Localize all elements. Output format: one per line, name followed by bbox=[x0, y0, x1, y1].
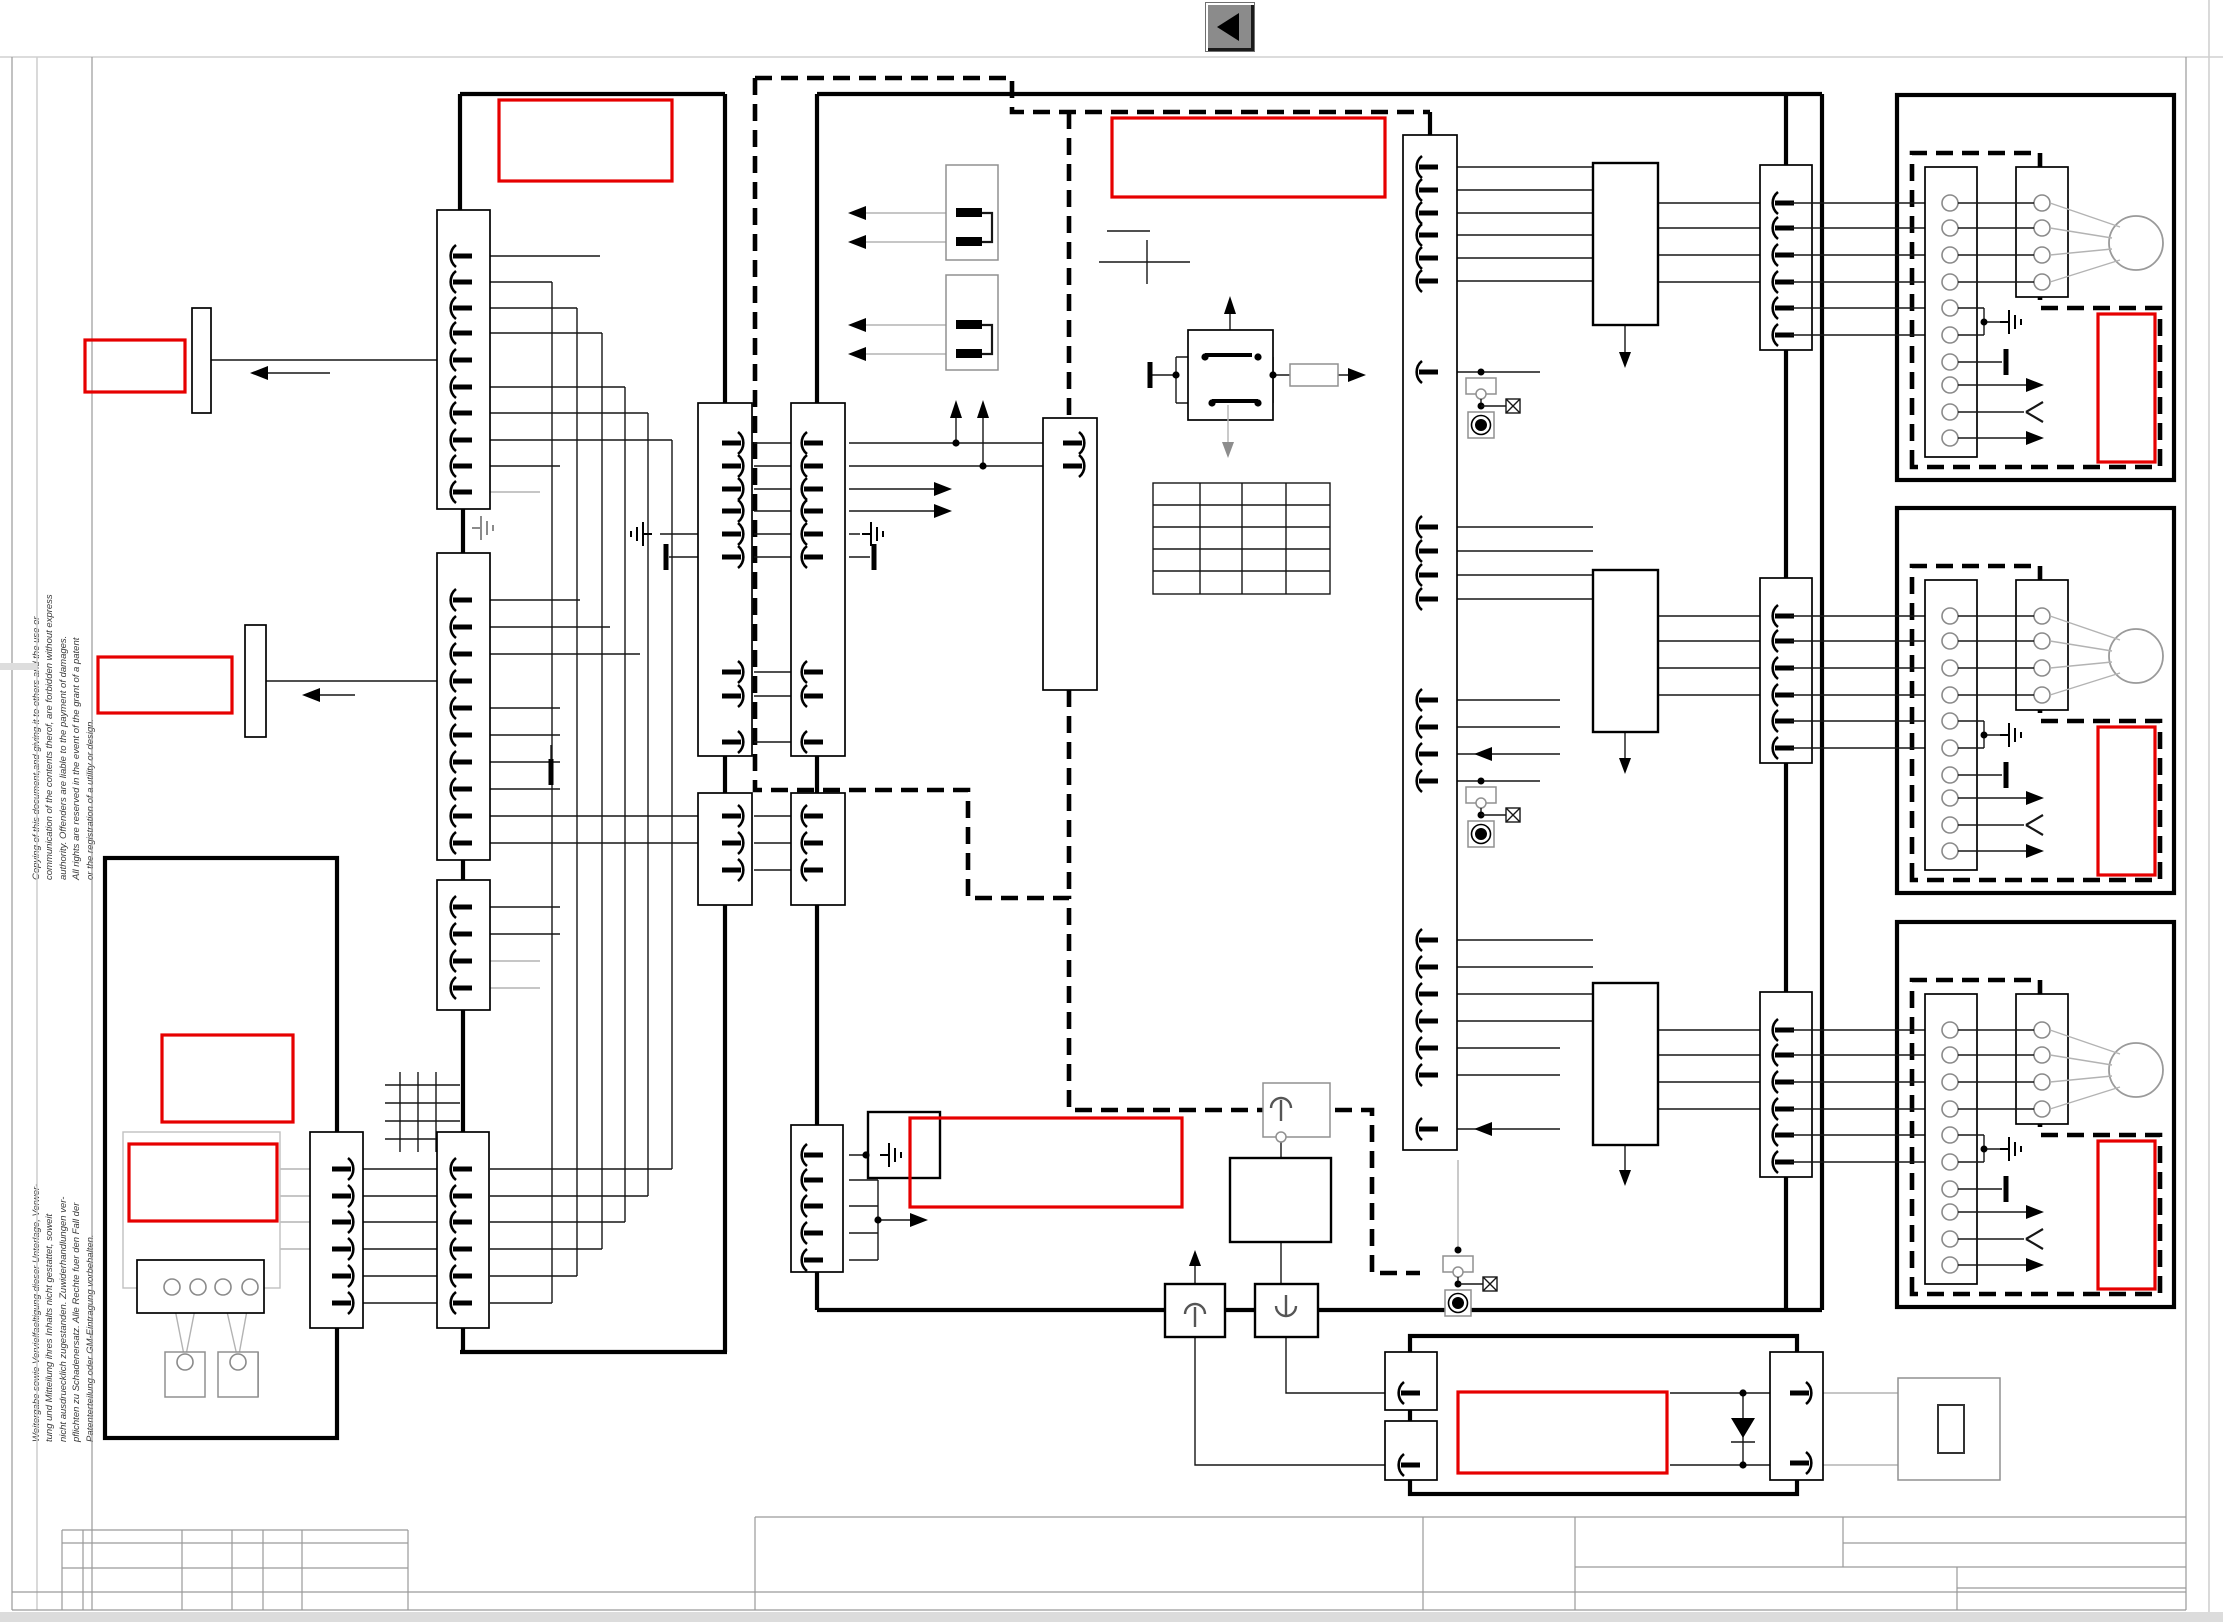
schematic-canvas bbox=[0, 0, 2223, 1622]
sheet-frame bbox=[0, 0, 2223, 1622]
highlight-box bbox=[910, 1118, 1182, 1207]
earth-ground-icon bbox=[862, 522, 883, 546]
ecu-block bbox=[1593, 983, 1658, 1145]
indicator-lamp-icon bbox=[1443, 1247, 1497, 1317]
viewer-page: Copying of this document,and giving it t… bbox=[0, 0, 2223, 1622]
sensor-connector bbox=[192, 308, 211, 413]
highlight-box bbox=[98, 657, 232, 713]
fuse-icon bbox=[956, 208, 982, 217]
highlight-box bbox=[1112, 118, 1385, 197]
earth-ground-icon bbox=[472, 516, 493, 540]
relay-block bbox=[1188, 330, 1273, 420]
indicator-lamp-icon bbox=[1466, 778, 1520, 848]
indicator-lamp-icon bbox=[1466, 369, 1520, 439]
module-bottom-center bbox=[1410, 1336, 1797, 1494]
earth-ground-icon bbox=[631, 522, 652, 546]
chassis-ground-icon bbox=[549, 759, 554, 785]
fuse-icon bbox=[956, 349, 982, 358]
fuse-icon bbox=[956, 320, 982, 329]
resistor-icon bbox=[1290, 364, 1338, 386]
ecu-block bbox=[1593, 570, 1658, 732]
sensor-connector bbox=[245, 625, 266, 737]
connector-strips bbox=[310, 135, 1823, 1480]
title-block bbox=[12, 1517, 2186, 1610]
control-box bbox=[1230, 1158, 1331, 1242]
terminal-bar-icon bbox=[1148, 362, 1153, 388]
highlight-box bbox=[85, 340, 185, 392]
highlight-box bbox=[1458, 1392, 1667, 1473]
junction-box bbox=[868, 1112, 940, 1178]
fuse-icon bbox=[956, 237, 982, 246]
highlight-box bbox=[499, 100, 672, 181]
diode-icon bbox=[1731, 1418, 1755, 1438]
ecu-block bbox=[1593, 163, 1658, 325]
chassis-ground-icon bbox=[872, 544, 877, 570]
current-sensor-box bbox=[1263, 1083, 1330, 1137]
chassis-ground-icon bbox=[664, 544, 669, 570]
highlight-box bbox=[162, 1035, 293, 1122]
